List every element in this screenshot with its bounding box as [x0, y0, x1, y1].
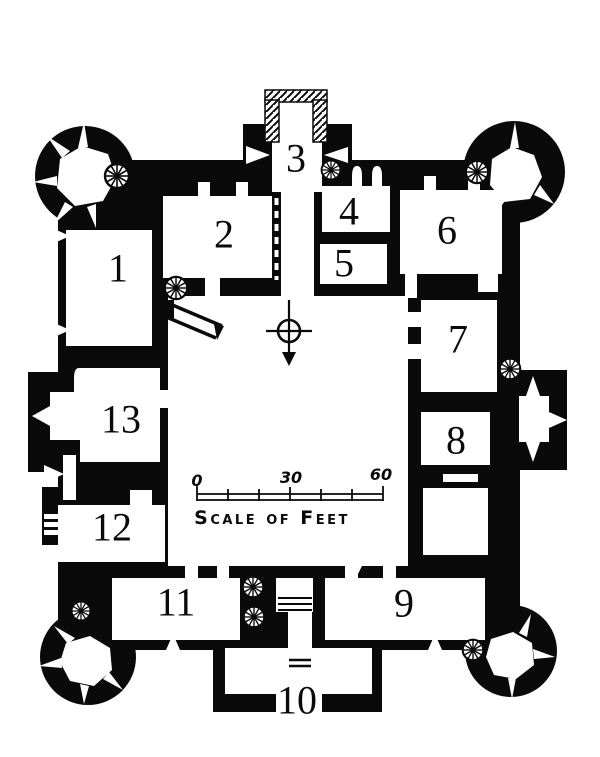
scale-caption: Scale of Feet	[194, 507, 350, 529]
room-11-door-b	[217, 566, 229, 578]
room-9-notch	[383, 566, 396, 578]
room-label-6: 6	[437, 208, 457, 253]
room-2-notch-b	[236, 182, 248, 196]
floor-plan-page: 0 30 60 Scale of Feet 12345678910111213	[0, 0, 600, 757]
spiral-stair-icon	[500, 359, 521, 380]
room-label-8: 8	[446, 418, 466, 463]
window-slit	[443, 474, 478, 482]
spiral-stair-icon	[165, 277, 187, 299]
room-13-door	[160, 390, 184, 408]
room-7-door-b	[407, 344, 421, 359]
room-label-2: 2	[214, 212, 234, 257]
room-11-door-a	[185, 566, 198, 578]
spiral-stair-icon	[466, 161, 488, 183]
west-closet	[63, 455, 76, 500]
gate-corridor	[281, 192, 314, 300]
spiral-stair-icon	[243, 577, 264, 598]
lancet-window-a	[352, 166, 362, 190]
room-12-door	[130, 490, 152, 507]
room-6-east-door	[478, 266, 498, 292]
spiral-stair-icon	[72, 602, 91, 621]
room-6-notch-a	[424, 176, 436, 190]
lancet-window-b	[372, 166, 382, 190]
garderobe-slit-c	[44, 530, 58, 535]
spiral-stair-icon	[244, 607, 265, 628]
scale-tick-0: 0	[191, 471, 202, 490]
room-label-7: 7	[448, 317, 468, 362]
room-2-notch-a	[198, 182, 210, 196]
room-label-5: 5	[334, 241, 354, 286]
hatched-porch-wall-left	[265, 100, 279, 142]
room-7-door-a	[407, 312, 421, 327]
castle-floor-plan: 0 30 60 Scale of Feet 12345678910111213	[0, 0, 600, 757]
spiral-stair-icon	[105, 164, 129, 188]
hatched-porch-wall-right	[313, 100, 327, 142]
west-turret-room	[50, 392, 88, 440]
room-2-door	[205, 278, 220, 298]
scale-tick-30: 30	[280, 468, 302, 487]
spiral-stair-icon	[322, 161, 341, 180]
room-label-10: 10	[277, 678, 317, 723]
courtyard-nw-stub	[160, 300, 174, 318]
room-label-1: 1	[108, 246, 128, 291]
spiral-stair-icon	[463, 640, 484, 661]
room-label-3: 3	[286, 136, 306, 181]
east-lower-room	[423, 488, 488, 555]
garderobe-slit-a	[44, 514, 58, 519]
scale-tick-60: 60	[370, 465, 392, 484]
room-6-court-door	[405, 274, 417, 298]
south-stair-passage	[276, 578, 313, 612]
east-turret-room	[519, 396, 549, 442]
room-label-13: 13	[101, 397, 141, 442]
room-label-11: 11	[157, 580, 196, 625]
room-label-4: 4	[339, 189, 359, 234]
garderobe-slit-b	[44, 522, 58, 527]
room-label-9: 9	[394, 581, 414, 626]
room-label-12: 12	[92, 505, 132, 550]
lancet-window-c	[74, 368, 84, 392]
